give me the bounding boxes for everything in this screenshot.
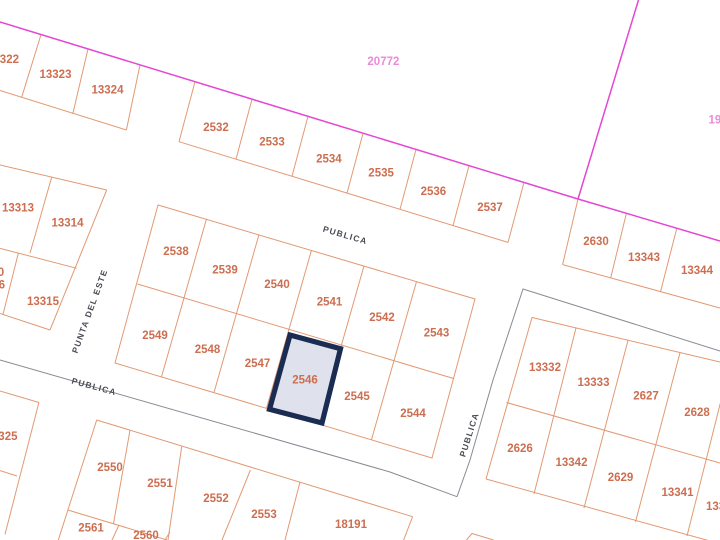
svg-text:2552: 2552 [203,493,229,505]
svg-text:2539: 2539 [212,265,238,277]
svg-text:2630: 2630 [583,236,609,248]
svg-text:13314: 13314 [52,218,85,230]
svg-text:2561: 2561 [78,523,104,535]
svg-text:2627: 2627 [633,391,659,403]
svg-text:20772: 20772 [367,56,399,68]
svg-text:2628: 2628 [684,407,710,419]
svg-text:2541: 2541 [317,297,343,309]
svg-text:13333: 13333 [578,377,610,389]
svg-text:2542: 2542 [369,312,395,324]
svg-text:13332: 13332 [529,362,561,374]
svg-text:2540: 2540 [264,279,290,291]
svg-text:2532: 2532 [203,122,229,134]
svg-text:2534: 2534 [316,153,342,165]
svg-text:2549: 2549 [142,330,168,342]
svg-text:2626: 2626 [507,443,533,455]
svg-text:2543: 2543 [424,328,450,340]
svg-text:2629: 2629 [608,472,634,484]
svg-text:2533: 2533 [259,137,285,149]
svg-text:13344: 13344 [681,265,714,277]
svg-text:2553: 2553 [251,509,277,521]
svg-text:13316: 13316 [0,280,5,292]
svg-text:2535: 2535 [368,168,394,180]
svg-text:13323: 13323 [40,69,72,81]
svg-text:13315: 13315 [27,296,60,308]
svg-text:2544: 2544 [400,408,426,420]
svg-text:2537: 2537 [477,202,503,214]
svg-text:13325: 13325 [0,431,18,443]
svg-text:2550: 2550 [97,462,123,474]
svg-text:13343: 13343 [628,252,660,264]
svg-text:2551: 2551 [147,478,173,490]
svg-text:198: 198 [709,115,720,127]
svg-text:13322: 13322 [0,54,19,66]
svg-text:2547: 2547 [245,358,271,370]
svg-text:2545: 2545 [344,391,370,403]
svg-text:2548: 2548 [195,344,221,356]
svg-text:13340: 13340 [706,501,720,513]
svg-text:2536: 2536 [421,186,447,198]
svg-text:13341: 13341 [662,487,695,499]
svg-text:18191: 18191 [335,519,368,531]
svg-text:2560: 2560 [133,530,159,540]
svg-text:13342: 13342 [556,457,588,469]
svg-text:2546: 2546 [292,375,318,387]
svg-text:13324: 13324 [92,85,125,97]
svg-text:0: 0 [0,267,4,279]
svg-text:13313: 13313 [2,203,34,215]
svg-text:2538: 2538 [163,246,189,258]
